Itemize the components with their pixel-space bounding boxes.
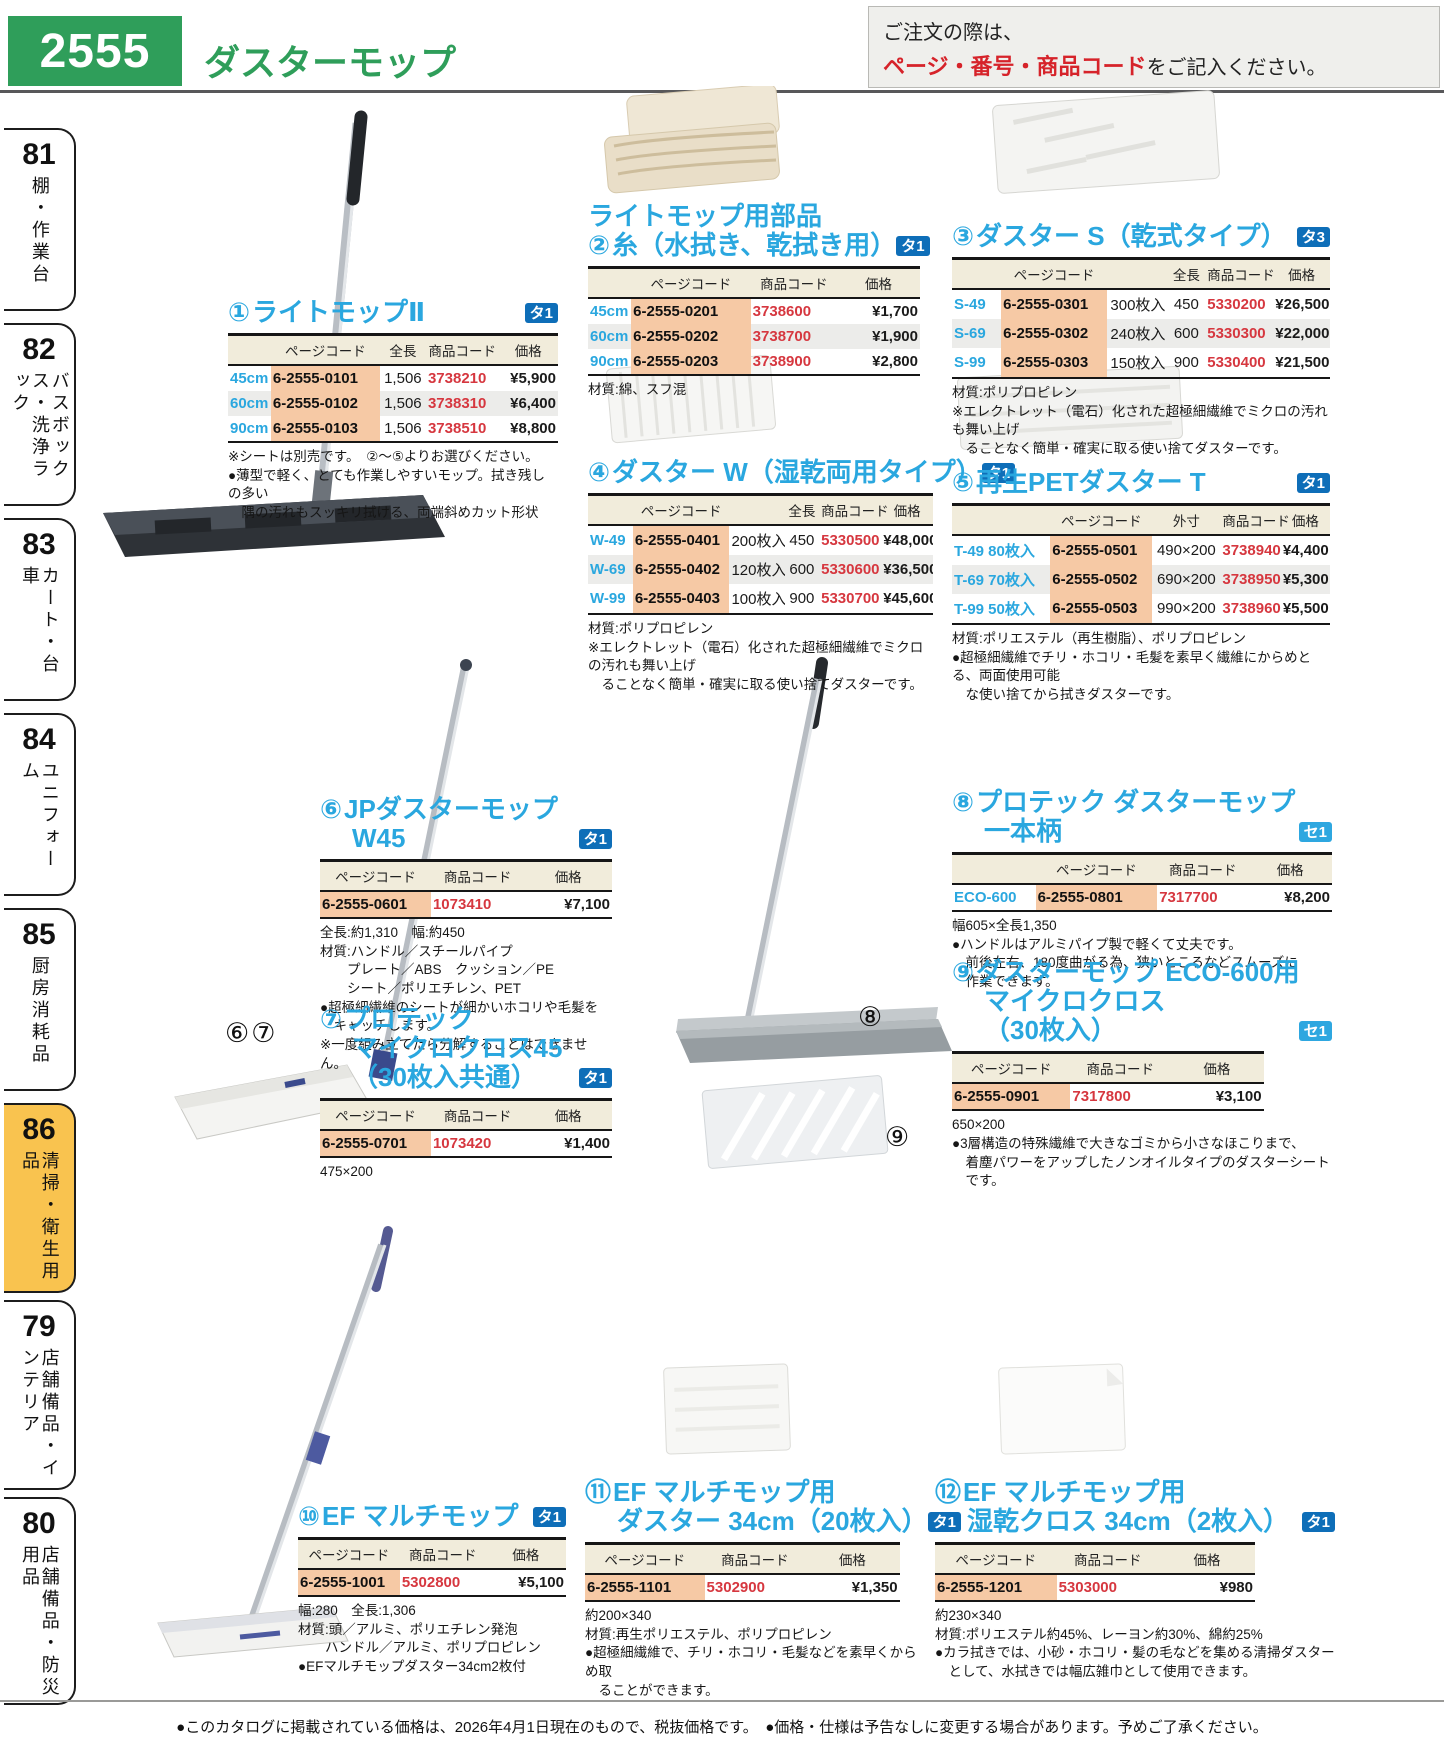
section-title: ⑪EF マルチモップ用 ダスター 34cm（20枚入）タ1 [585,1478,927,1536]
table-cell-code: 5330400 [1205,348,1273,378]
column-header: ページコード [298,1539,400,1570]
table-cell-size: T-49 80枚入 [952,535,1050,565]
section-title: ①ライトモップⅡタ1 [228,298,558,327]
section-number: ⑫ [935,1478,961,1507]
section-duster-s: ③ダスター S（乾式タイプ）タ3 ページコード全長商品コード価格S-496-25… [952,222,1330,459]
note-line: 幅:280 全長:1,306 [298,1602,566,1621]
table-cell-len: 900 [785,584,820,614]
column-header [729,495,784,526]
note-line: 材質:ポリプロピレン [952,384,1330,403]
section-number: ⑦ [320,1005,342,1034]
table-header-row: ページコード外寸商品コード価格 [952,505,1330,536]
column-header [228,335,271,366]
product-table: ページコード外寸商品コード価格T-49 80枚入6-2555-0501490×2… [952,503,1330,625]
section-title-text: 再生PETダスター T [976,468,1206,497]
page-title: ダスターモップ [204,34,456,86]
column-header: 商品コード [1220,505,1280,536]
section-title-text: プロテック [344,1005,474,1034]
table-row: W-696-2555-0402120枚入6005330600¥36,500 [588,555,933,584]
column-header [588,268,631,299]
sidebar-tab-83[interactable]: 83 カート・台車 [4,518,76,701]
table-header-row: ページコード商品コード価格 [320,861,612,892]
column-header: ページコード [1050,505,1152,536]
note-line: プレート／ABS クッション／PE [320,961,612,980]
column-header: 価格 [524,861,612,892]
table-row: 6-2555-06011073410¥7,100 [320,891,612,918]
section-title-text: JPダスターモップ [344,795,558,824]
section-number: ⑪ [585,1478,611,1507]
column-header [1107,259,1167,290]
catalog-badge: タ1 [579,829,612,849]
note-line: ●ハンドルはアルミパイプ製で軽くて丈夫です。 [952,936,1332,955]
section-title-text: ライトモップ用部品 [588,202,822,231]
photo-ef-duster-sheet [655,1358,800,1462]
tab-number: 81 [22,138,55,172]
product-table: ページコード商品コード価格ECO-6006-2555-08017317700¥8… [952,852,1332,912]
photo-label-7: ⑦ [251,1018,277,1048]
product-table: ページコード全長商品コード価格W-496-2555-0401200枚入45053… [588,493,933,615]
table-row: 6-2555-09017317800¥3,100 [952,1083,1264,1110]
table-cell-price: ¥1,900 [837,324,920,349]
table-cell-price: ¥8,800 [499,416,558,442]
photo-eco600-microcloth [695,1075,895,1175]
section-number: ⑧ [952,788,974,817]
column-header: 商品コード [431,1100,524,1131]
table-cell-size: 60cm [588,324,631,349]
table-row: 6-2555-07011073420¥1,400 [320,1130,612,1157]
section-number: ⑨ [952,958,974,987]
note-line: ることなく簡単・確実に取る使い捨てダスターです。 [952,440,1330,459]
product-table: ページコード全長商品コード価格45cm6-2555-01011,50637382… [228,333,558,443]
table-cell-price: ¥8,200 [1248,884,1332,911]
table-cell-len: 1,506 [380,365,426,391]
table-cell-code: 5330600 [819,555,881,584]
column-header: ページコード [320,861,431,892]
catalog-badge: タ1 [1302,1512,1335,1532]
note-line: 約200×340 [585,1607,927,1626]
sidebar-tab-86-active[interactable]: 86 清掃・衛生用品 [4,1103,76,1293]
table-cell-pagecode: 6-2555-1101 [585,1574,705,1601]
table-cell-price: ¥48,000 [881,525,933,555]
section-title-text: （30枚入共通） [352,1063,537,1092]
table-row: 6-2555-11015302900¥1,350 [585,1574,900,1601]
column-header: ページコード [585,1544,705,1575]
note-line: ることなく簡単・確実に取る使い捨てダスターです。 [588,676,933,695]
photo-label-6: ⑥ [225,1018,251,1048]
sidebar-tab-81[interactable]: 81 棚・作業台 [4,128,76,311]
note-line: な使い捨てから拭きダスターです。 [952,686,1330,705]
section-notes: 650×200●3層構造の特殊繊維で大きなゴミから小さなほこりまで、 着塵パワー… [952,1116,1332,1191]
section-title: ③ダスター S（乾式タイプ）タ3 [952,222,1330,251]
column-header [588,495,633,526]
table-cell-pagecode: 6-2555-1201 [935,1574,1057,1601]
section-title: ⑥JPダスターモップ W45タ1 [320,795,612,853]
table-cell-code: 3738960 [1220,594,1280,624]
table-cell-pagecode: 6-2555-0101 [271,365,380,391]
table-cell-code: 7317700 [1157,884,1248,911]
table-cell-len: 1,506 [380,391,426,416]
table-cell-price: ¥4,400 [1281,535,1330,565]
footer-text: ●このカタログに掲載されている価格は、2026年4月1日現在のもので、税抜価格で… [0,1716,1444,1737]
table-cell-price: ¥45,600 [881,584,933,614]
section-title-text: 一本柄 [984,817,1062,846]
table-cell-code: 3738700 [751,324,837,349]
column-header: ページコード [935,1544,1057,1575]
tab-label: 清掃・衛生用品 [19,1151,59,1287]
product-table: ページコード全長商品コード価格S-496-2555-0301300枚入45053… [952,257,1330,379]
section-title-text: 糸（水拭き、乾拭き用） [612,231,896,260]
note-line: 材質:再生ポリエステル、ポリプロピレン [585,1626,927,1645]
table-cell-price: ¥21,500 [1273,348,1330,378]
table-cell-code: 3738510 [426,416,499,442]
tab-label: 厨房消耗品 [29,956,49,1066]
section-light-mop-parts: ライトモップ用部品 ②糸（水拭き、乾拭き用）タ1 ページコード商品コード価格45… [588,202,920,400]
catalog-page: 2555 ダスターモップ ご注文の際は、 ページ・番号・商品コードをご記入くださ… [0,0,1444,1754]
column-header: ページコード [320,1100,431,1131]
table-cell-len: 600 [785,555,820,584]
table-cell-size: W-99 [588,584,633,614]
section-title: ⑤再生PETダスター Tタ1 [952,468,1330,497]
note-line: ●超極細繊維で、チリ・ホコリ・毛髪などを素早くからめ取 [585,1644,927,1681]
table-cell-pagecode: 6-2555-0601 [320,891,431,918]
note-line: 全長:約1,310 幅:約450 [320,924,612,943]
tab-number: 79 [22,1310,55,1344]
section-title-text: プロテック ダスターモップ [976,788,1295,817]
table-row: 6-2555-12015303000¥980 [935,1574,1255,1601]
table-cell-code: 1073410 [431,891,524,918]
product-table: ページコード商品コード価格6-2555-09017317800¥3,100 [952,1051,1264,1111]
table-cell-price: ¥3,100 [1170,1083,1264,1110]
column-header: 価格 [837,268,920,299]
section-notes: 材質:ポリエステル（再生樹脂）、ポリプロピレン●超極細繊維でチリ・ホコリ・毛髪を… [952,630,1330,705]
column-header: 商品コード [1057,1544,1159,1575]
section-title-text: 湿乾クロス 34cm（2枚入） [967,1507,1289,1536]
column-header: 商品コード [400,1539,486,1570]
table-cell-price: ¥7,100 [524,891,612,918]
table-row: ECO-6006-2555-08017317700¥8,200 [952,884,1332,911]
column-header: 価格 [486,1539,566,1570]
table-row: T-49 80枚入6-2555-0501490×2003738940¥4,400 [952,535,1330,565]
table-cell-outer: 990×200 [1152,594,1220,624]
sidebar-tab-82[interactable]: 82 バスボックス・洗浄ラック [4,323,76,506]
note-line: ●薄型で軽く、とても作業しやすいモップ。拭き残しの多い [228,467,558,504]
table-header-row: ページコード商品コード価格 [952,854,1332,885]
column-header: 価格 [499,335,558,366]
product-table: ページコード商品コード価格6-2555-06011073410¥7,100 [320,859,612,919]
tab-number: 80 [22,1507,55,1541]
section-title: ⑩EF マルチモップタ1 [298,1502,566,1531]
column-header: ページコード [1036,854,1158,885]
section-ef-multi-mop: ⑩EF マルチモップタ1 ページコード商品コード価格6-2555-1001530… [298,1502,566,1677]
table-cell-pagecode: 6-2555-0301 [1001,289,1107,319]
table-cell-pagecode: 6-2555-0303 [1001,348,1107,378]
tab-number: 85 [22,918,55,952]
section-eco600-microcloth: ⑨ダスターモップ ECO-600用 マイクロクロス （30枚入）セ1 ページコー… [952,958,1332,1191]
column-header: 全長 [1167,259,1205,290]
footer-rule [0,1700,1444,1702]
section-number: ④ [588,458,610,487]
table-row: T-99 50枚入6-2555-0503990×2003738960¥5,500 [952,594,1330,624]
table-cell-size: T-69 70枚入 [952,565,1050,594]
section-title-text: W45 [352,824,405,853]
table-cell-size: S-99 [952,348,1001,378]
tab-label: 棚・作業台 [29,176,49,286]
column-header: ページコード [631,268,751,299]
note-line: 材質:綿、スフ混 [588,381,920,400]
table-cell-size: T-99 50枚入 [952,594,1050,624]
table-cell-price: ¥2,800 [837,349,920,375]
column-header: 価格 [524,1100,612,1131]
tab-number: 86 [22,1113,55,1147]
tab-label: ユニフォーム [19,761,59,890]
table-cell-code: 3738900 [751,349,837,375]
table-cell-size: S-69 [952,319,1001,348]
table-cell-outer: 690×200 [1152,565,1220,594]
table-cell-price: ¥5,300 [1281,565,1330,594]
note-line: ハンドル／アルミ、ポリプロピレン [298,1639,566,1658]
table-cell-price: ¥22,000 [1273,319,1330,348]
table-cell-qty: 150枚入 [1107,348,1167,378]
section-light-mop-2: ①ライトモップⅡタ1 ページコード全長商品コード価格45cm6-2555-010… [228,298,558,523]
product-table: ページコード商品コード価格6-2555-12015303000¥980 [935,1542,1255,1602]
section-number: ⑩ [298,1502,320,1531]
table-cell-code: 5330200 [1205,289,1273,319]
catalog-badge: セ1 [1299,1021,1332,1041]
column-header: 価格 [1170,1053,1264,1084]
table-cell-size: 45cm [588,298,631,324]
table-header-row: ページコード商品コード価格 [935,1544,1255,1575]
note-line: 約230×340 [935,1607,1335,1626]
tab-label: 店舗備品・防災用品 [19,1545,59,1699]
table-cell-code: 3738950 [1220,565,1280,594]
section-title-text: マイクロクロス [984,987,1165,1016]
section-title: ⑦プロテック マイクロクロス45 （30枚入共通）タ1 [320,1005,612,1092]
note-line: シート／ポリエチレン、PET [320,980,612,999]
table-cell-pagecode: 6-2555-0402 [633,555,730,584]
column-header: 外寸 [1152,505,1220,536]
column-header: 商品コード [431,861,524,892]
page-number-box: 2555 [8,16,182,86]
section-title-text: ダスター S（乾式タイプ） [976,222,1287,251]
table-header-row: ページコード全長商品コード価格 [588,495,933,526]
note-line: ※エレクトレット（電石）化された超極細繊維でミクロの汚れも舞い上げ [588,639,933,676]
table-cell-qty: 240枚入 [1107,319,1167,348]
column-header: 商品コード [1205,259,1273,290]
table-row: 90cm6-2555-02033738900¥2,800 [588,349,920,375]
catalog-badge: タ1 [1297,473,1330,493]
table-cell-code: 3738310 [426,391,499,416]
table-cell-pagecode: 6-2555-0701 [320,1130,431,1157]
table-cell-pagecode: 6-2555-0501 [1050,535,1152,565]
sidebar-tab-84[interactable]: 84 ユニフォーム [4,713,76,896]
catalog-badge: タ3 [1297,227,1330,247]
note-line: 隅の汚れもスッキリ拭ける、両端斜めカット形状 [228,504,558,523]
note-line: です。 [952,1172,1332,1191]
table-cell-price: ¥36,500 [881,555,933,584]
note-line: ●3層構造の特殊繊維で大きなゴミから小さなほこりまで、 [952,1135,1332,1154]
column-header: 商品コード [819,495,881,526]
table-cell-pagecode: 6-2555-0103 [271,416,380,442]
table-cell-pagecode: 6-2555-0401 [633,525,730,555]
product-table: ページコード商品コード価格6-2555-11015302900¥1,350 [585,1542,900,1602]
order-note-highlight: ページ・番号・商品コード [883,54,1147,79]
table-cell-size: 60cm [228,391,271,416]
catalog-badge: タ1 [533,1507,566,1527]
section-title-text: ダスター 34cm（20枚入） [617,1507,928,1536]
photo-duster-s-sheet [975,86,1240,206]
section-notes: 475×200 [320,1163,612,1182]
section-notes: 材質:ポリプロピレン※エレクトレット（電石）化された超極細繊維でミクロの汚れも舞… [588,620,933,695]
table-cell-size: 45cm [228,365,271,391]
table-cell-qty: 300枚入 [1107,289,1167,319]
table-row: W-496-2555-0401200枚入4505330500¥48,000 [588,525,933,555]
section-notes: ※シートは別売です。 ②～⑤よりお選びください。●薄型で軽く、とても作業しやすい… [228,448,558,523]
section-title-text: EF マルチモップ用 [613,1478,835,1507]
table-header-row: ページコード商品コード価格 [585,1544,900,1575]
photo-mop-yarn-pad [598,86,793,194]
column-header: 商品コード [1157,854,1248,885]
section-notes: 約200×340材質:再生ポリエステル、ポリプロピレン●超極細繊維で、チリ・ホコ… [585,1607,927,1700]
product-table: ページコード商品コード価格45cm6-2555-02013738600¥1,70… [588,266,920,376]
section-title-text: EF マルチモップ用 [963,1478,1185,1507]
catalog-badge: タ1 [525,303,558,323]
table-cell-code: 5302900 [705,1574,806,1601]
column-header: 価格 [881,495,933,526]
table-cell-price: ¥980 [1159,1574,1255,1601]
table-header-row: ページコード全長商品コード価格 [952,259,1330,290]
table-cell-pagecode: 6-2555-0801 [1036,884,1158,911]
table-header-row: ページコード商品コード価格 [952,1053,1264,1084]
table-cell-code: 3738940 [1220,535,1280,565]
column-header: ページコード [952,1053,1070,1084]
table-cell-pagecode: 6-2555-0102 [271,391,380,416]
table-row: S-996-2555-0303150枚入9005330400¥21,500 [952,348,1330,378]
photo-label-9: ⑨ [885,1122,911,1153]
photo-label-8: ⑧ [858,1002,884,1033]
table-cell-code: 3738600 [751,298,837,324]
note-line: ●超極細繊維でチリ・ホコリ・毛髪を素早く繊維にからめとる、両面使用可能 [952,649,1330,686]
table-cell-pagecode: 6-2555-0202 [631,324,751,349]
note-line: 幅605×全長1,350 [952,917,1332,936]
section-title-text: EF マルチモップ [322,1502,518,1531]
sidebar-tab-80[interactable]: 80 店舗備品・防災用品 [4,1497,76,1705]
section-title-text: （30枚入） [984,1016,1117,1045]
section-title: ⑧プロテック ダスターモップ 一本柄セ1 [952,788,1332,846]
table-cell-qty: 100枚入 [729,584,784,614]
table-cell-size: 90cm [228,416,271,442]
table-cell-price: ¥6,400 [499,391,558,416]
column-header: 全長 [785,495,820,526]
table-row: 45cm6-2555-01011,5063738210¥5,900 [228,365,558,391]
page-number: 2555 [40,24,151,79]
table-cell-code: 1073420 [431,1130,524,1157]
section-number: ⑥ [320,795,342,824]
table-cell-code: 3738210 [426,365,499,391]
section-number: ③ [952,222,974,251]
table-cell-price: ¥5,500 [1281,594,1330,624]
column-header [952,259,1001,290]
table-cell-code: 5302800 [400,1569,486,1596]
section-title: ライトモップ用部品 ②糸（水拭き、乾拭き用）タ1 [588,202,920,260]
note-line: 650×200 [952,1116,1332,1135]
section-number: ⑤ [952,468,974,497]
column-header: 全長 [380,335,426,366]
tab-number: 82 [22,333,55,367]
order-note-line2: ページ・番号・商品コードをご記入ください。 [883,49,1425,81]
note-line: 材質:頭／アルミ、ポリエチレン発泡 [298,1621,566,1640]
note-line: 材質:ポリエステル（再生樹脂）、ポリプロピレン [952,630,1330,649]
table-cell-size: W-49 [588,525,633,555]
table-row: S-496-2555-0301300枚入4505330200¥26,500 [952,289,1330,319]
note-line: ることができます。 [585,1682,927,1701]
note-line: 475×200 [320,1163,612,1182]
section-notes: 材質:綿、スフ混 [588,381,920,400]
section-title: ④ダスター W（湿乾両用タイプ）タ1 [588,458,933,487]
table-cell-code: 5330500 [819,525,881,555]
table-cell-price: ¥1,350 [805,1574,899,1601]
tab-label: バスボックス・洗浄ラック [9,371,68,500]
note-line: 材質:ハンドル／スチールパイプ [320,943,612,962]
table-cell-size: 90cm [588,349,631,375]
tab-label: 店舗備品・インテリア [19,1348,59,1484]
sidebar-tab-85[interactable]: 85 厨房消耗品 [4,908,76,1091]
tab-number: 84 [22,723,55,757]
section-title-text: ライトモップⅡ [252,298,425,327]
section-protec-microcloth-45: ⑦プロテック マイクロクロス45 （30枚入共通）タ1 ページコード商品コード価… [320,1005,612,1182]
table-cell-len: 450 [785,525,820,555]
sidebar-tab-79[interactable]: 79 店舗備品・インテリア [4,1300,76,1490]
note-line: ※シートは別売です。 ②～⑤よりお選びください。 [228,448,558,467]
order-note-tail: をご記入ください。 [1147,57,1327,79]
note-line: 着塵パワーをアップしたノンオイルタイプのダスターシート [952,1154,1332,1173]
section-title: ⑨ダスターモップ ECO-600用 マイクロクロス （30枚入）セ1 [952,958,1332,1045]
table-header-row: ページコード全長商品コード価格 [228,335,558,366]
table-cell-price: ¥26,500 [1273,289,1330,319]
column-header: 価格 [1248,854,1332,885]
section-title-text: ダスターモップ ECO-600用 [976,958,1300,987]
table-cell-price: ¥1,700 [837,298,920,324]
note-line: ●カラ拭きでは、小砂・ホコリ・髪の毛などを集める清掃ダスター [935,1644,1335,1663]
column-header: 商品コード [705,1544,806,1575]
table-cell-pagecode: 6-2555-0203 [631,349,751,375]
order-note-box: ご注文の際は、 ページ・番号・商品コードをご記入ください。 [868,6,1440,88]
column-header [952,505,1050,536]
table-row: 60cm6-2555-01021,5063738310¥6,400 [228,391,558,416]
table-cell-outer: 490×200 [1152,535,1220,565]
table-cell-len: 450 [1167,289,1205,319]
table-cell-code: 5330700 [819,584,881,614]
table-header-row: ページコード商品コード価格 [320,1100,612,1131]
tab-number: 83 [22,528,55,562]
product-table: ページコード商品コード価格6-2555-10015302800¥5,100 [298,1537,566,1597]
column-header: ページコード [271,335,380,366]
note-line: 材質:ポリプロピレン [588,620,933,639]
table-header-row: ページコード商品コード価格 [298,1539,566,1570]
column-header: 価格 [1273,259,1330,290]
column-header: 価格 [805,1544,899,1575]
catalog-badge: セ1 [1299,822,1332,842]
note-line: ●EFマルチモップダスター34cm2枚付 [298,1658,566,1677]
table-cell-code: 5330300 [1205,319,1273,348]
photo-protec-duster-mop [670,655,970,1075]
table-cell-size: S-49 [952,289,1001,319]
table-cell-code: 5303000 [1057,1574,1159,1601]
column-header: 商品コード [1070,1053,1170,1084]
section-pet-duster-t: ⑤再生PETダスター Tタ1 ページコード外寸商品コード価格T-49 80枚入6… [952,468,1330,705]
catalog-badge: タ1 [896,236,929,256]
table-cell-code: 7317800 [1070,1083,1170,1110]
table-cell-pagecode: 6-2555-0503 [1050,594,1152,624]
